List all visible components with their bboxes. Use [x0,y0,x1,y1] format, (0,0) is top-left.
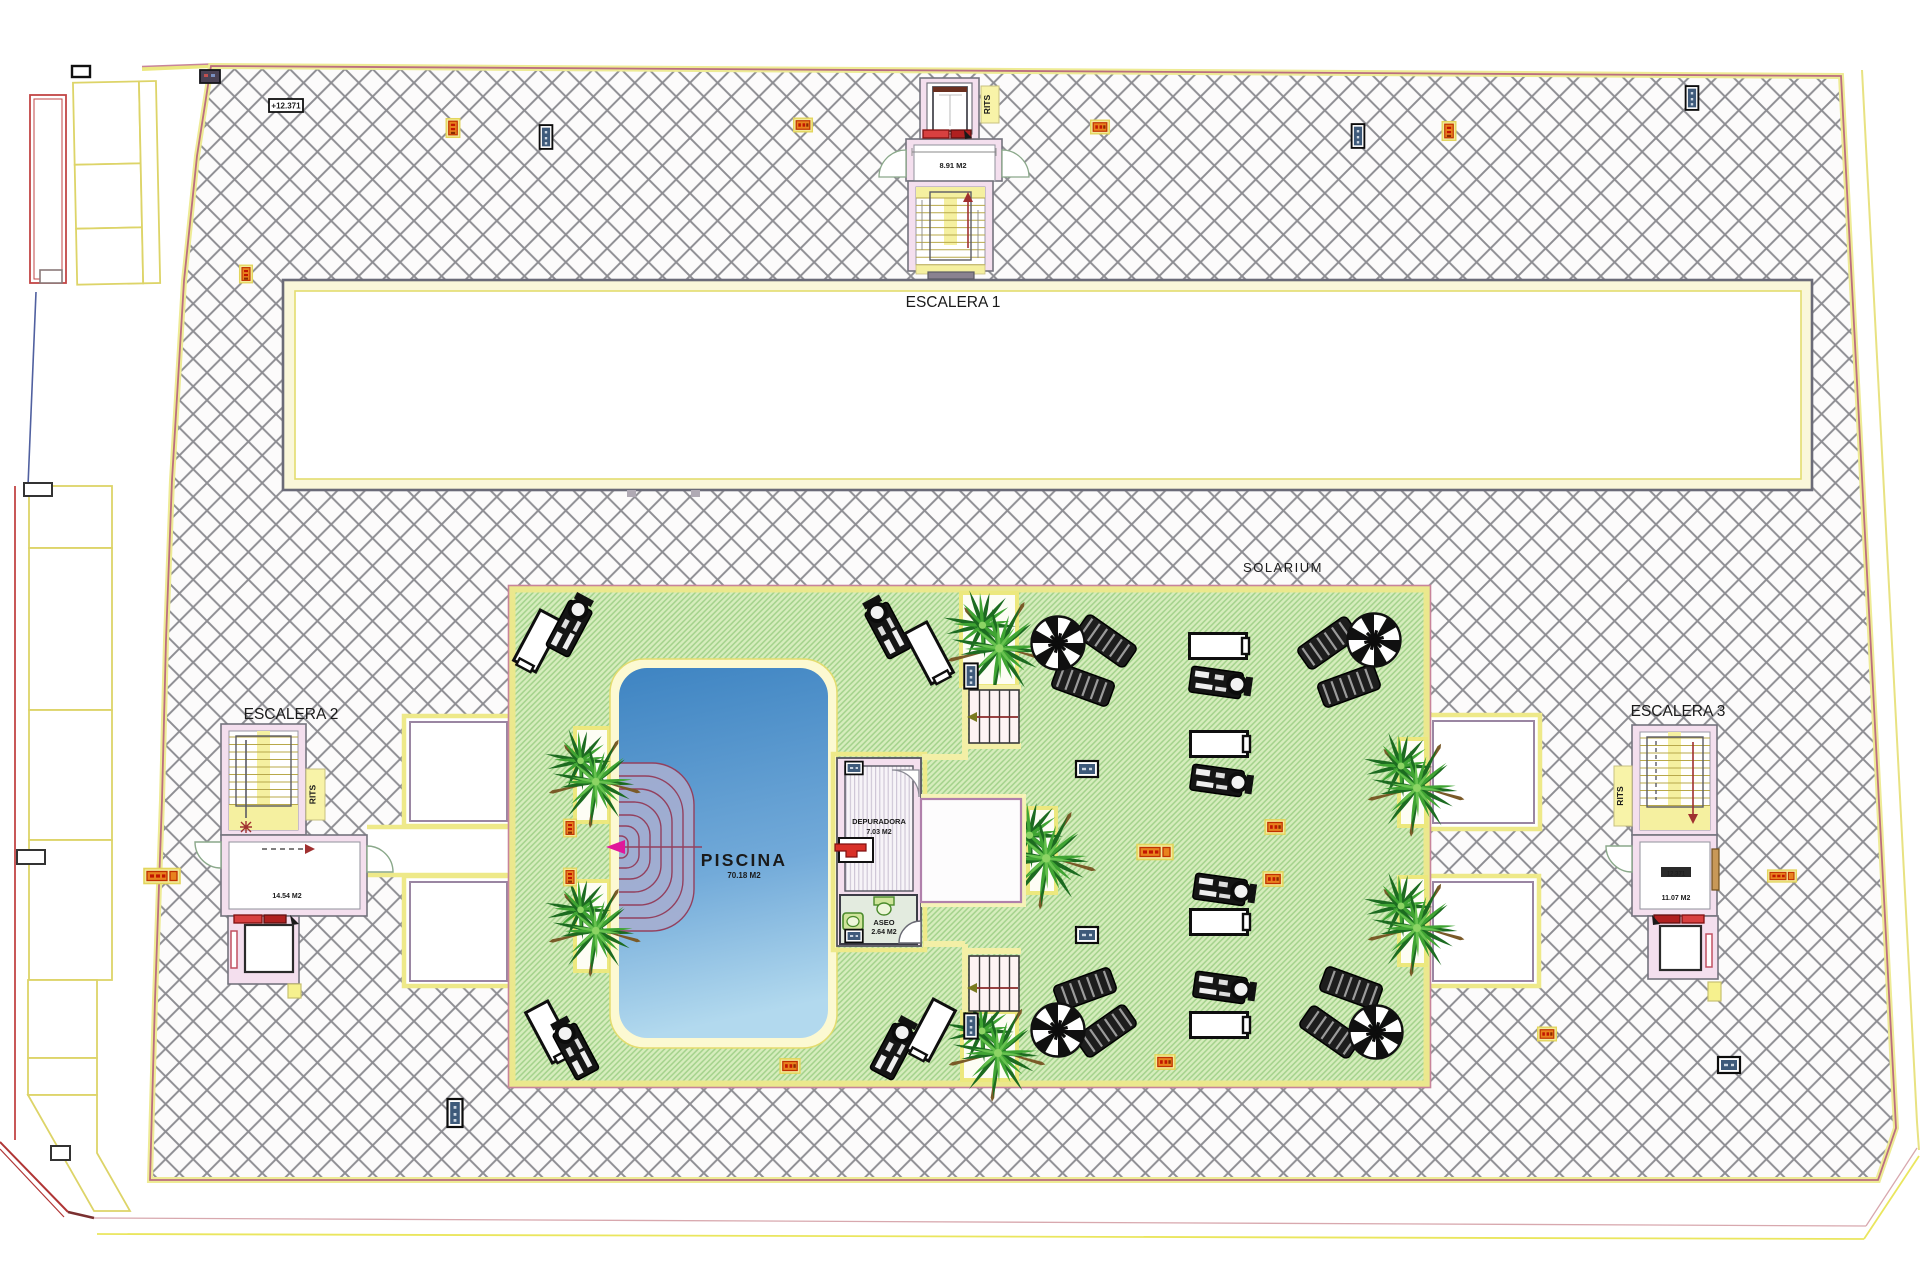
svg-text:SOLARIUM: SOLARIUM [1243,560,1323,575]
svg-text:8.91 M2: 8.91 M2 [939,161,966,170]
svg-text:+12.371: +12.371 [271,102,301,111]
svg-text:11.07 M2: 11.07 M2 [1662,895,1691,902]
svg-text:RITS: RITS [308,784,318,804]
svg-text:RITS: RITS [982,94,992,114]
svg-text:ESCALERA 3: ESCALERA 3 [1631,703,1726,720]
svg-text:7.03 M2: 7.03 M2 [866,829,891,836]
svg-text:PISCINA: PISCINA [701,850,787,870]
svg-text:ESCALERA 1: ESCALERA 1 [906,294,1001,311]
svg-text:70.18 M2: 70.18 M2 [727,871,761,880]
svg-text:12.371: 12.371 [1667,872,1686,878]
svg-text:14.54 M2: 14.54 M2 [272,893,301,900]
svg-text:2.64 M2: 2.64 M2 [871,929,896,936]
svg-text:DEPURADORA: DEPURADORA [852,817,906,826]
svg-text:ESCALERA 2: ESCALERA 2 [244,706,339,723]
svg-text:ASEO: ASEO [873,918,894,927]
svg-text:RITS: RITS [1615,786,1625,806]
